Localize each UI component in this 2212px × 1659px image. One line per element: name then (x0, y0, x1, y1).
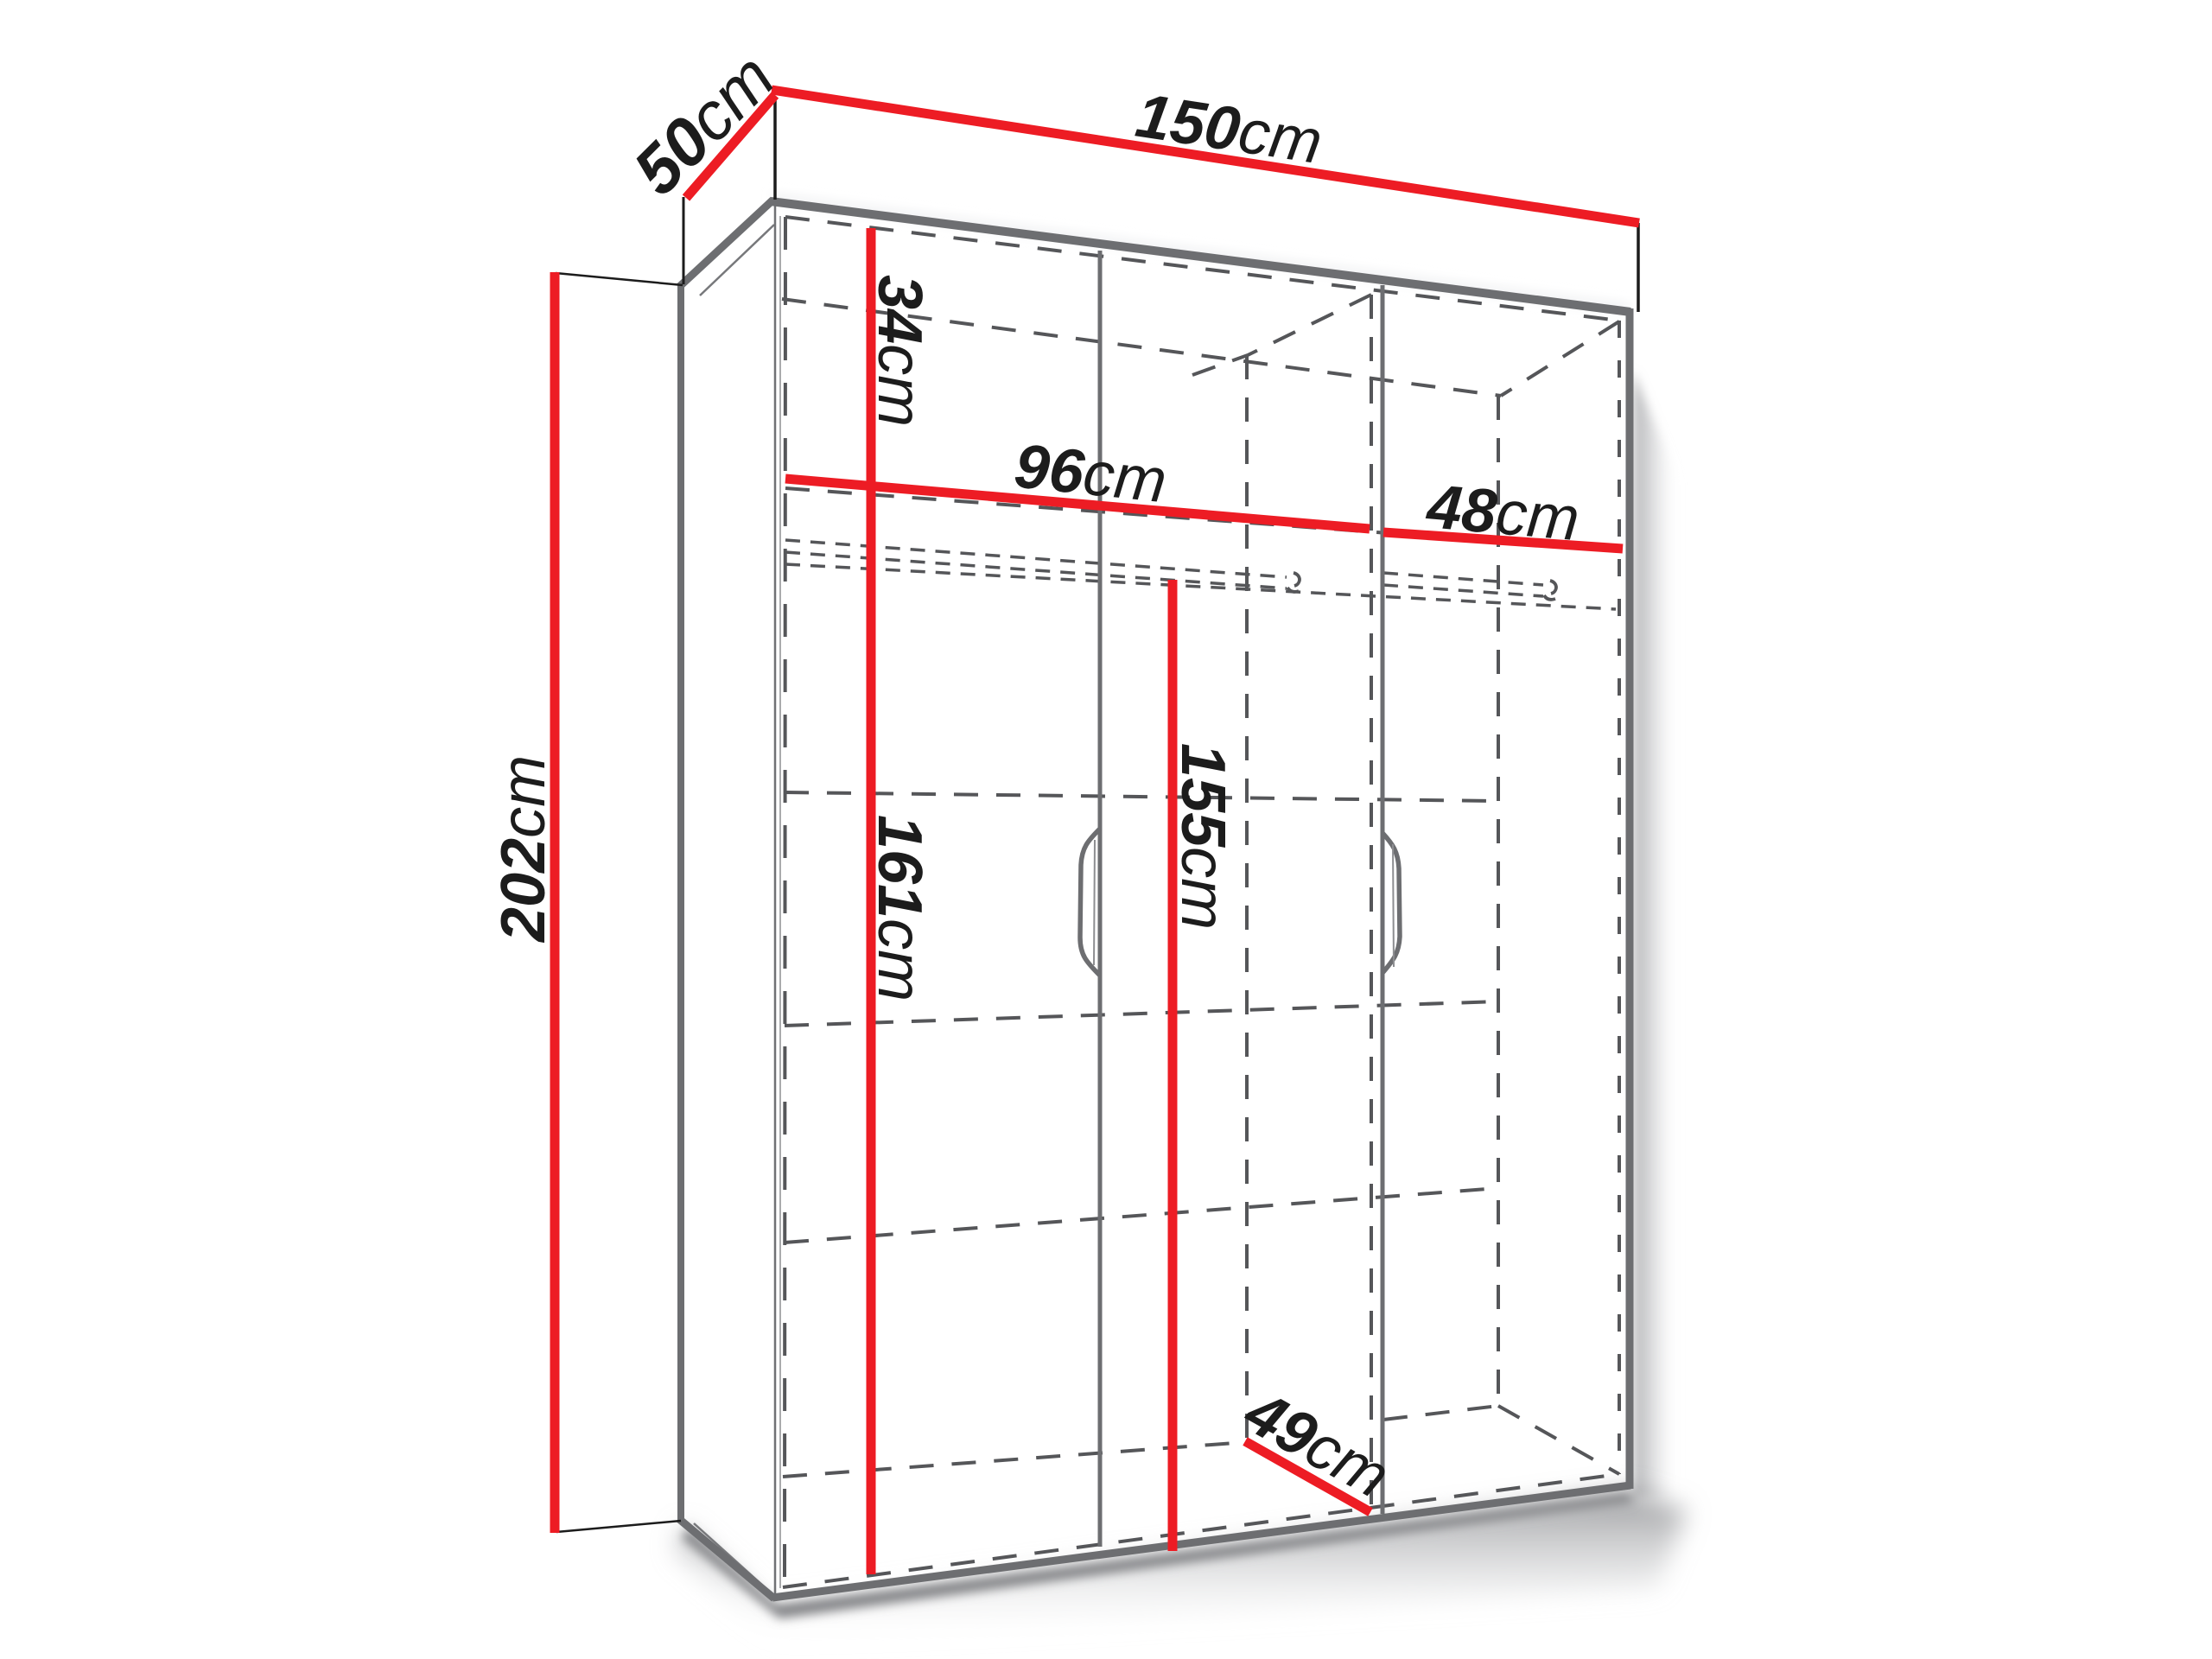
svg-text:202cm: 202cm (489, 755, 558, 944)
svg-text:34cm: 34cm (865, 275, 934, 427)
svg-text:155cm: 155cm (1168, 743, 1237, 930)
svg-text:161cm: 161cm (865, 815, 934, 1001)
svg-text:48cm: 48cm (1423, 472, 1582, 554)
